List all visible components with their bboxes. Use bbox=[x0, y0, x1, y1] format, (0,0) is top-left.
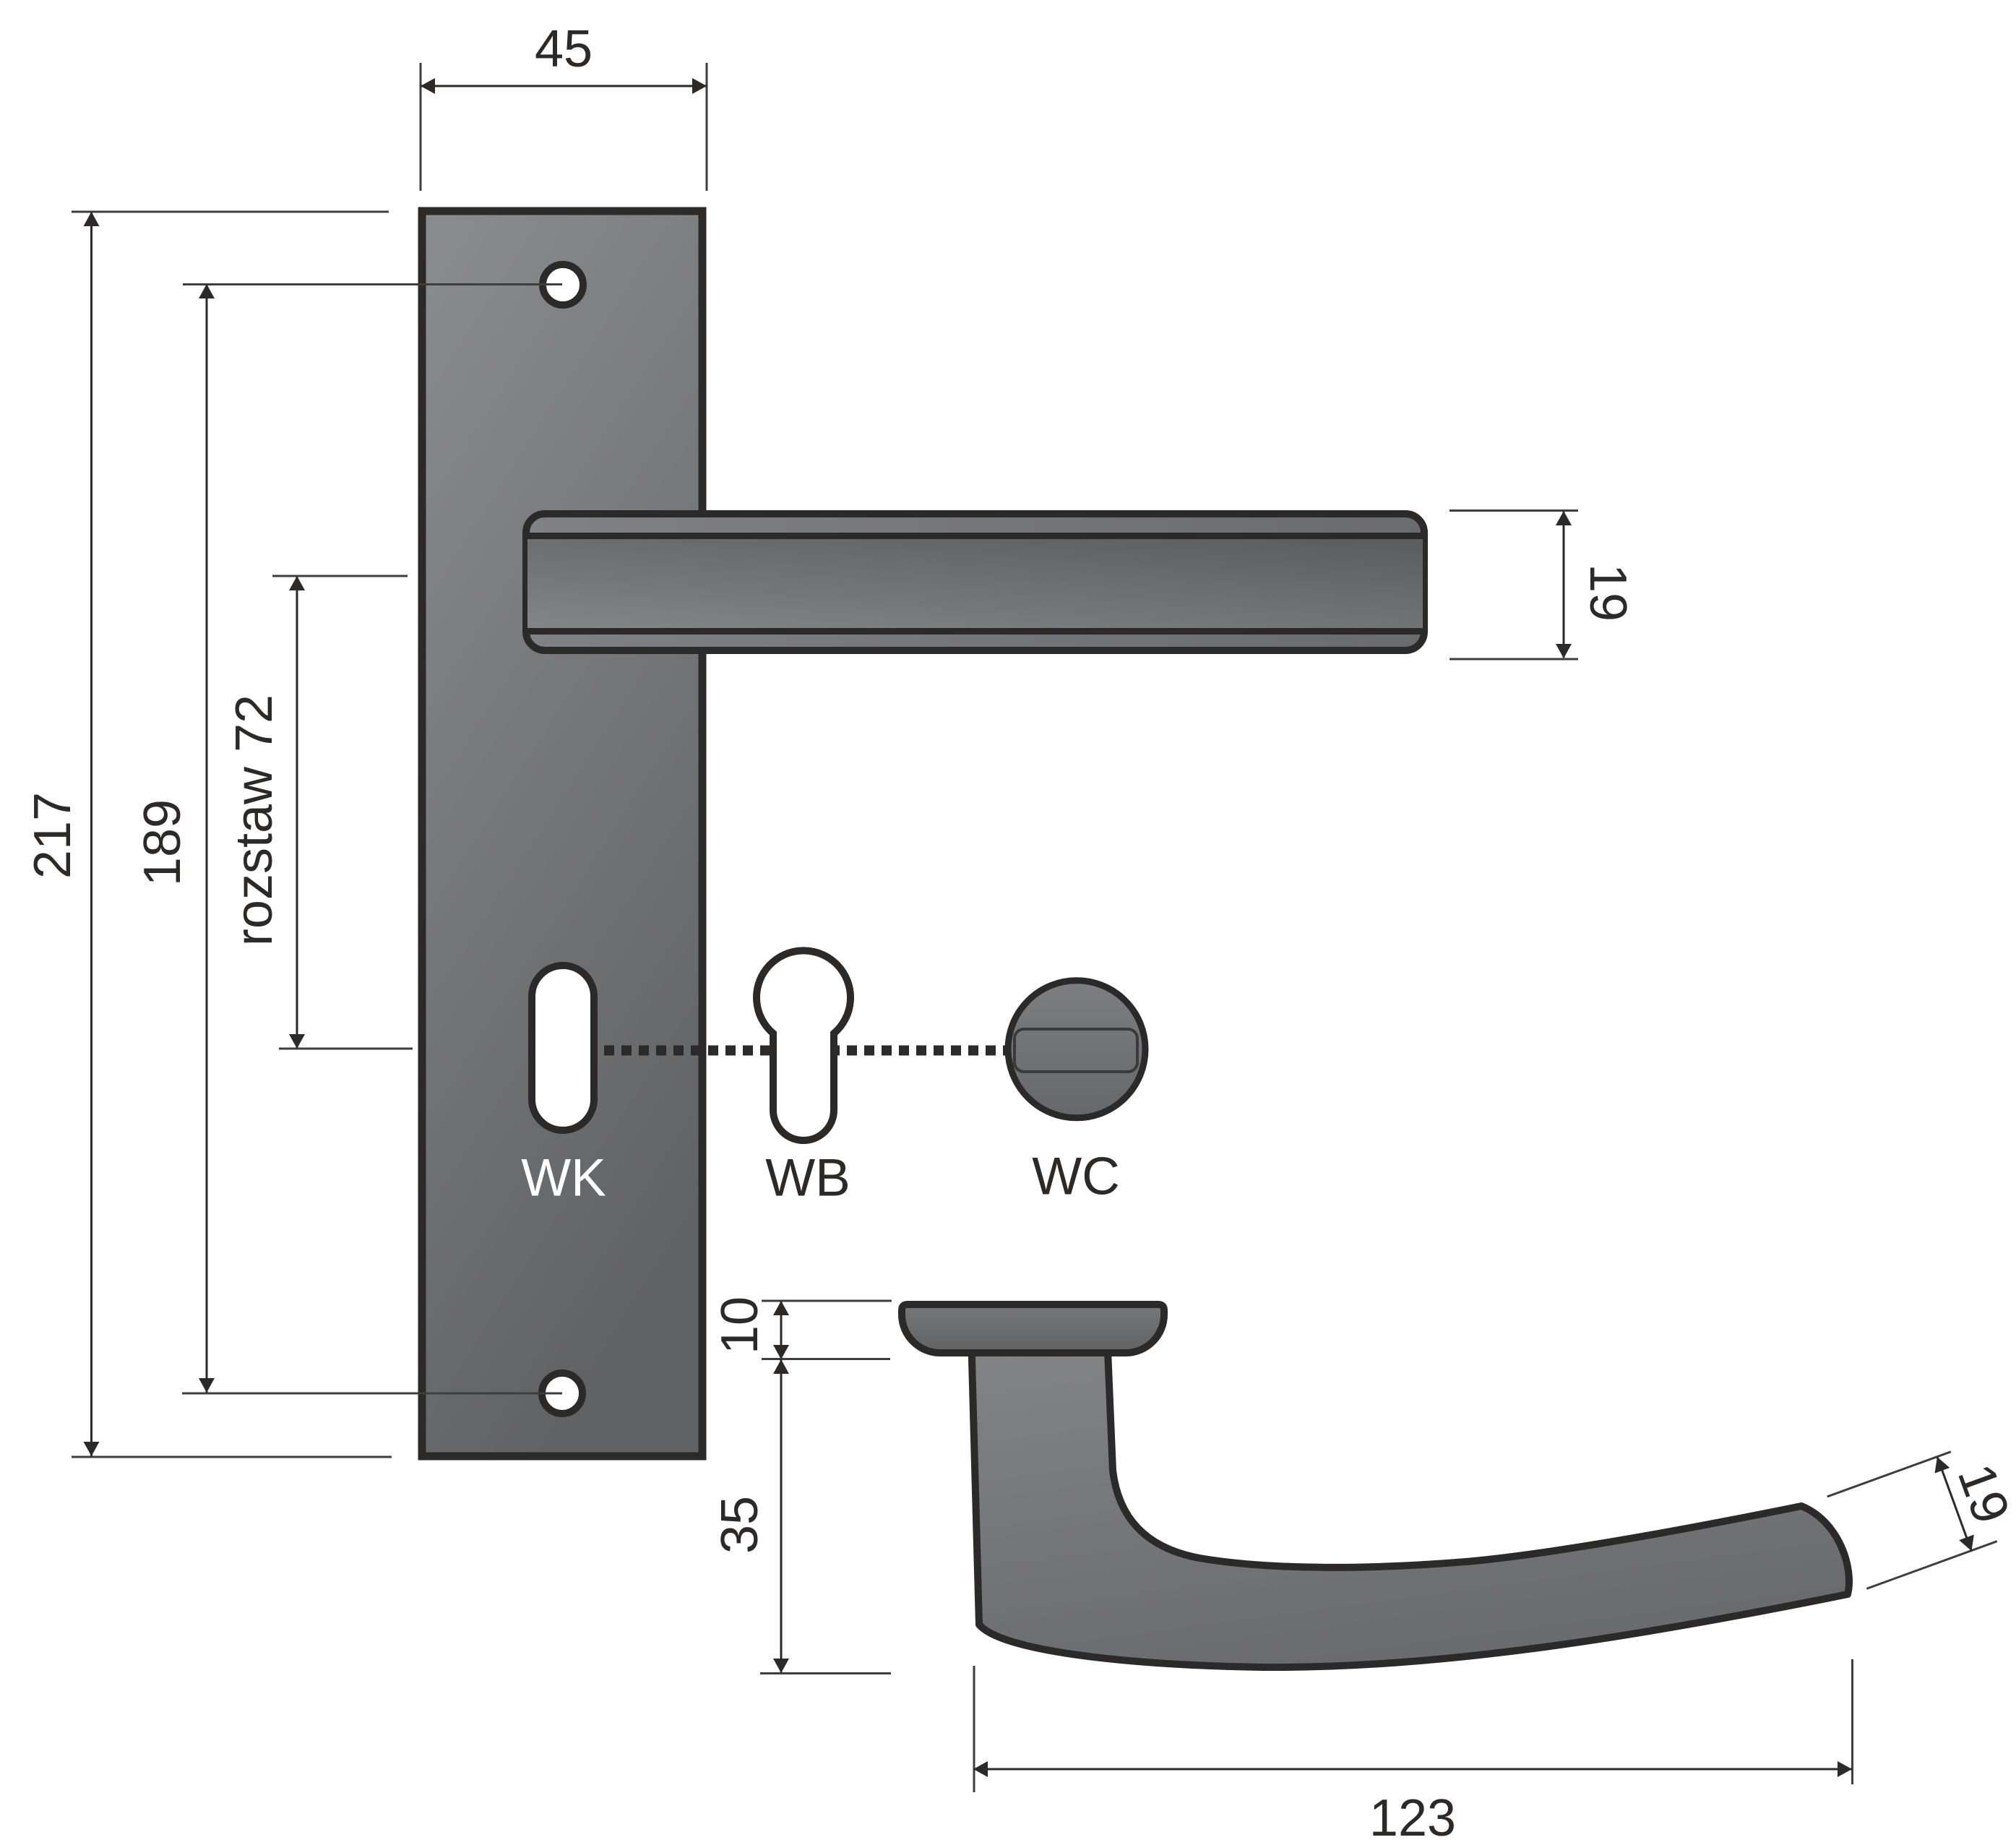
svg-text:123: 123 bbox=[1369, 1789, 1456, 1845]
svg-text:189: 189 bbox=[134, 799, 191, 886]
svg-text:WC: WC bbox=[1032, 1148, 1120, 1206]
svg-text:10: 10 bbox=[711, 1296, 769, 1354]
svg-text:45: 45 bbox=[535, 20, 593, 78]
svg-text:19: 19 bbox=[1579, 564, 1637, 622]
svg-text:WB: WB bbox=[765, 1149, 850, 1208]
svg-text:217: 217 bbox=[24, 792, 82, 879]
svg-text:35: 35 bbox=[711, 1496, 769, 1554]
svg-text:rozstaw 72: rozstaw 72 bbox=[225, 694, 283, 946]
svg-text:WK: WK bbox=[521, 1149, 606, 1208]
